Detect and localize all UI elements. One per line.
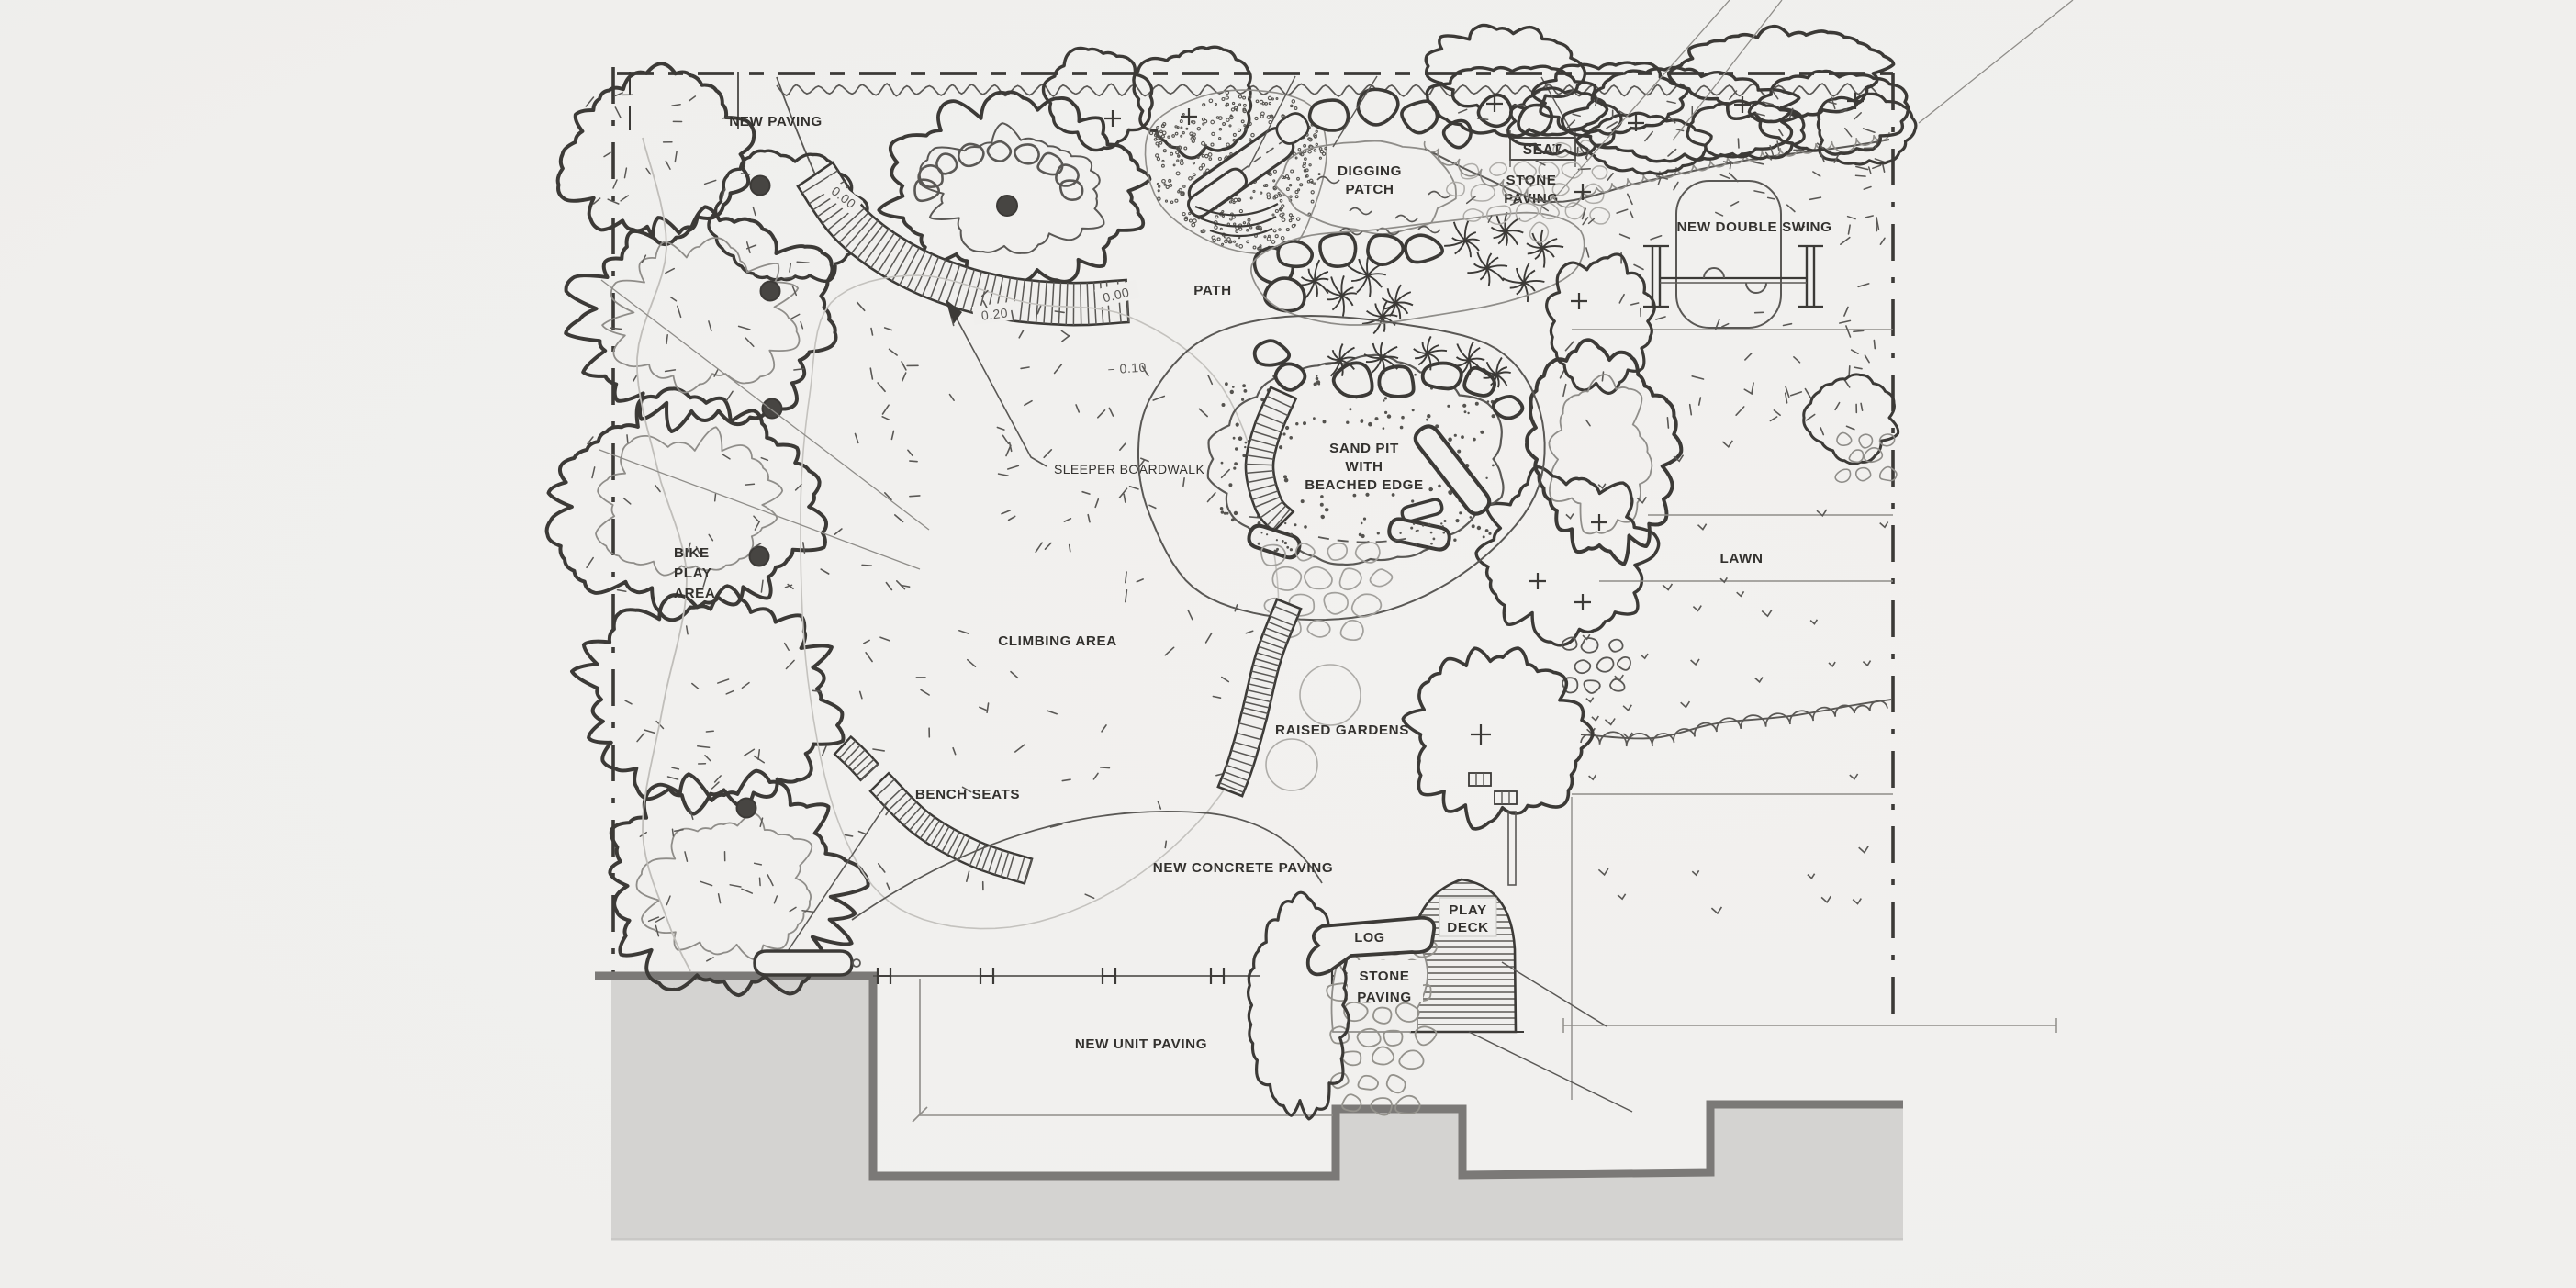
svg-text:PATH: PATH xyxy=(1193,283,1232,298)
svg-text:SLEEPER BOARDWALK: SLEEPER BOARDWALK xyxy=(1054,462,1204,476)
svg-text:PAVING: PAVING xyxy=(1357,990,1412,1005)
svg-text:BEACHED EDGE: BEACHED EDGE xyxy=(1305,477,1424,493)
svg-text:− 0.10: − 0.10 xyxy=(1107,360,1147,377)
svg-text:LAWN: LAWN xyxy=(1719,551,1763,566)
svg-text:WITH: WITH xyxy=(1345,459,1383,475)
svg-text:BIKE: BIKE xyxy=(674,545,710,561)
svg-text:NEW DOUBLE SWING: NEW DOUBLE SWING xyxy=(1676,219,1831,235)
svg-text:AREA: AREA xyxy=(674,586,715,601)
svg-text:PLAY: PLAY xyxy=(1449,902,1487,918)
svg-text:CLIMBING AREA: CLIMBING AREA xyxy=(998,633,1117,649)
svg-text:DIGGING: DIGGING xyxy=(1338,163,1402,179)
svg-text:PLAY: PLAY xyxy=(674,566,712,581)
svg-text:RAISED GARDENS: RAISED GARDENS xyxy=(1275,722,1409,738)
svg-text:LOG: LOG xyxy=(1354,931,1384,946)
svg-text:PATCH: PATCH xyxy=(1345,182,1394,197)
svg-text:NEW UNIT PAVING: NEW UNIT PAVING xyxy=(1075,1036,1207,1052)
svg-text:SAND PIT: SAND PIT xyxy=(1329,441,1399,456)
svg-text:NEW CONCRETE PAVING: NEW CONCRETE PAVING xyxy=(1153,860,1333,876)
svg-text:NEW PAVING: NEW PAVING xyxy=(729,114,823,129)
svg-text:BENCH SEATS: BENCH SEATS xyxy=(915,787,1020,802)
svg-text:DECK: DECK xyxy=(1447,920,1488,935)
svg-text:STONE: STONE xyxy=(1359,969,1409,984)
